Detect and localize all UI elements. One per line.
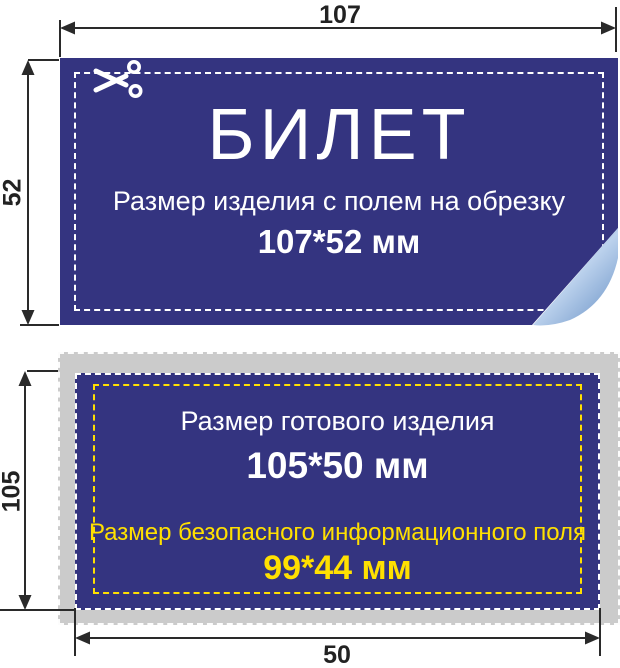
finished-size-label: Размер готового изделия: [77, 406, 598, 437]
trim-height-dimension-label-wrap: 105: [0, 373, 24, 610]
safe-area-label: Размер безопасного информационного поля: [77, 519, 598, 547]
print-size-infographic: 107 52 БИЛЕТ Размер изделия с полем на о…: [0, 0, 620, 668]
bottom-dimension-label: 50: [277, 641, 397, 668]
page-curl: [528, 224, 620, 327]
trim-card: Размер готового изделия 105*50 мм Размер…: [75, 373, 600, 610]
bleed-height-dimension-label: 52: [0, 179, 28, 207]
bleed-height-dimension-label-wrap: 52: [0, 50, 26, 335]
trim-height-dimension-label: 105: [0, 471, 27, 513]
safe-area-value: 99*44 мм: [77, 549, 598, 588]
ticket-title: БИЛЕТ: [60, 96, 618, 174]
top-dimension-label: 107: [280, 1, 400, 30]
finished-size-value: 105*50 мм: [77, 445, 598, 487]
bleed-subtitle: Размер изделия с полем на обрезку: [60, 186, 618, 217]
scissors-icon: [92, 59, 146, 101]
